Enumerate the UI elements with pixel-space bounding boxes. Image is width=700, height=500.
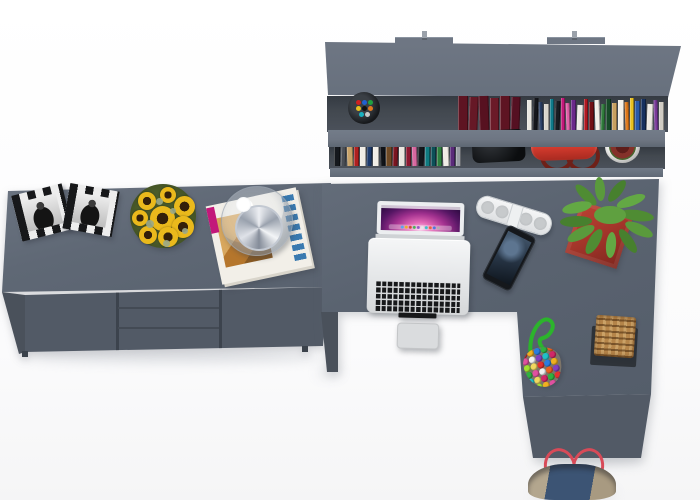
book bbox=[659, 102, 664, 130]
dock-app-icon bbox=[417, 226, 420, 229]
book bbox=[443, 145, 450, 166]
sprig bbox=[163, 240, 170, 247]
book bbox=[500, 96, 510, 130]
tote-bag-body bbox=[528, 464, 616, 500]
laptop-display-wallpaper bbox=[381, 205, 461, 232]
sprig bbox=[182, 228, 188, 234]
book bbox=[601, 104, 606, 130]
sideboard-side-panel bbox=[2, 292, 26, 354]
pen-cup bbox=[348, 92, 380, 124]
book bbox=[625, 102, 630, 130]
book bbox=[635, 101, 640, 130]
book bbox=[566, 103, 571, 130]
drawer-seam-2 bbox=[118, 327, 219, 329]
bouquet-sprigs bbox=[130, 184, 196, 248]
sideboard-foot-right bbox=[302, 346, 308, 352]
dock-app-icon bbox=[401, 226, 404, 229]
dock-app-icon bbox=[405, 226, 408, 229]
door-drawer-seam bbox=[116, 287, 119, 352]
book bbox=[456, 144, 461, 166]
book bbox=[606, 99, 611, 130]
desk-plant-foliage bbox=[558, 182, 658, 256]
book bbox=[653, 100, 658, 130]
laptop-body bbox=[367, 238, 471, 316]
pen bbox=[356, 100, 361, 105]
book bbox=[647, 104, 654, 130]
pen bbox=[368, 106, 373, 111]
shelf-middle-board-edge bbox=[328, 130, 665, 147]
drawer-door-seam bbox=[219, 287, 222, 349]
book bbox=[630, 98, 634, 130]
dock-app-icon bbox=[409, 226, 412, 229]
book bbox=[561, 98, 565, 130]
plant-leaf bbox=[561, 199, 593, 216]
book bbox=[618, 100, 624, 130]
mount-pin-right bbox=[572, 31, 577, 40]
pen bbox=[368, 100, 373, 105]
book bbox=[544, 104, 549, 130]
bw-portrait-photo bbox=[21, 193, 63, 232]
upper-shelf-books bbox=[527, 98, 667, 130]
pen bbox=[362, 100, 367, 105]
book bbox=[490, 98, 499, 130]
sprig bbox=[170, 208, 176, 214]
plant-leaf bbox=[594, 206, 626, 224]
book bbox=[360, 145, 366, 166]
plant-leaf bbox=[605, 232, 617, 259]
pen bbox=[362, 106, 367, 111]
laptop bbox=[367, 199, 472, 316]
speaker-grille bbox=[480, 199, 496, 215]
shelf-top-panel bbox=[322, 30, 684, 100]
tote-bag bbox=[528, 448, 616, 500]
book bbox=[550, 99, 554, 130]
dock-app-icon bbox=[433, 226, 436, 229]
pen bbox=[356, 106, 361, 111]
book bbox=[386, 144, 392, 166]
book bbox=[510, 97, 520, 130]
book bbox=[554, 101, 560, 130]
sideboard-foot-left bbox=[22, 351, 28, 357]
desk-leg-panel bbox=[321, 312, 338, 372]
book bbox=[527, 100, 532, 130]
drawer-seam-1 bbox=[118, 307, 219, 309]
book bbox=[589, 102, 594, 130]
glass-dome-lamp bbox=[221, 186, 293, 256]
dock-app-icon bbox=[413, 226, 416, 229]
sprig bbox=[146, 220, 154, 228]
laptop-keyboard bbox=[376, 281, 461, 313]
book bbox=[458, 96, 468, 130]
mount-pin-left bbox=[422, 31, 427, 40]
speaker-grille bbox=[532, 215, 548, 231]
book bbox=[571, 100, 576, 130]
book bbox=[399, 146, 405, 166]
pen bbox=[365, 112, 370, 117]
dock-app-icon bbox=[421, 226, 424, 229]
encyclopedia-book-set bbox=[458, 96, 524, 130]
book bbox=[594, 100, 600, 130]
pen bbox=[359, 112, 364, 117]
laptop-trackpad bbox=[397, 322, 440, 349]
laptop-menubar bbox=[381, 205, 460, 210]
render-canvas bbox=[0, 0, 700, 500]
laptop-screen-bezel bbox=[377, 201, 465, 236]
book bbox=[577, 105, 584, 130]
photo-frame-right bbox=[62, 183, 119, 237]
book bbox=[641, 99, 646, 130]
book bbox=[478, 96, 489, 130]
book bbox=[431, 144, 436, 166]
dock-app-icon bbox=[437, 226, 440, 229]
book bbox=[584, 99, 588, 130]
laptop-dock bbox=[389, 224, 452, 231]
sprig bbox=[156, 198, 163, 205]
dock-app-icon bbox=[425, 226, 428, 229]
wicker-cube-stool bbox=[594, 315, 637, 359]
book bbox=[468, 97, 478, 130]
lamp-bulb bbox=[236, 197, 251, 212]
shelf-bottom-board-edge bbox=[330, 168, 663, 177]
dock-app-icon bbox=[429, 226, 432, 229]
bw-portrait-photo bbox=[72, 192, 111, 227]
book bbox=[612, 103, 617, 130]
book bbox=[341, 144, 347, 166]
sunflower-bouquet bbox=[130, 184, 196, 248]
laptop-spacebar bbox=[398, 312, 436, 318]
book bbox=[539, 102, 544, 130]
